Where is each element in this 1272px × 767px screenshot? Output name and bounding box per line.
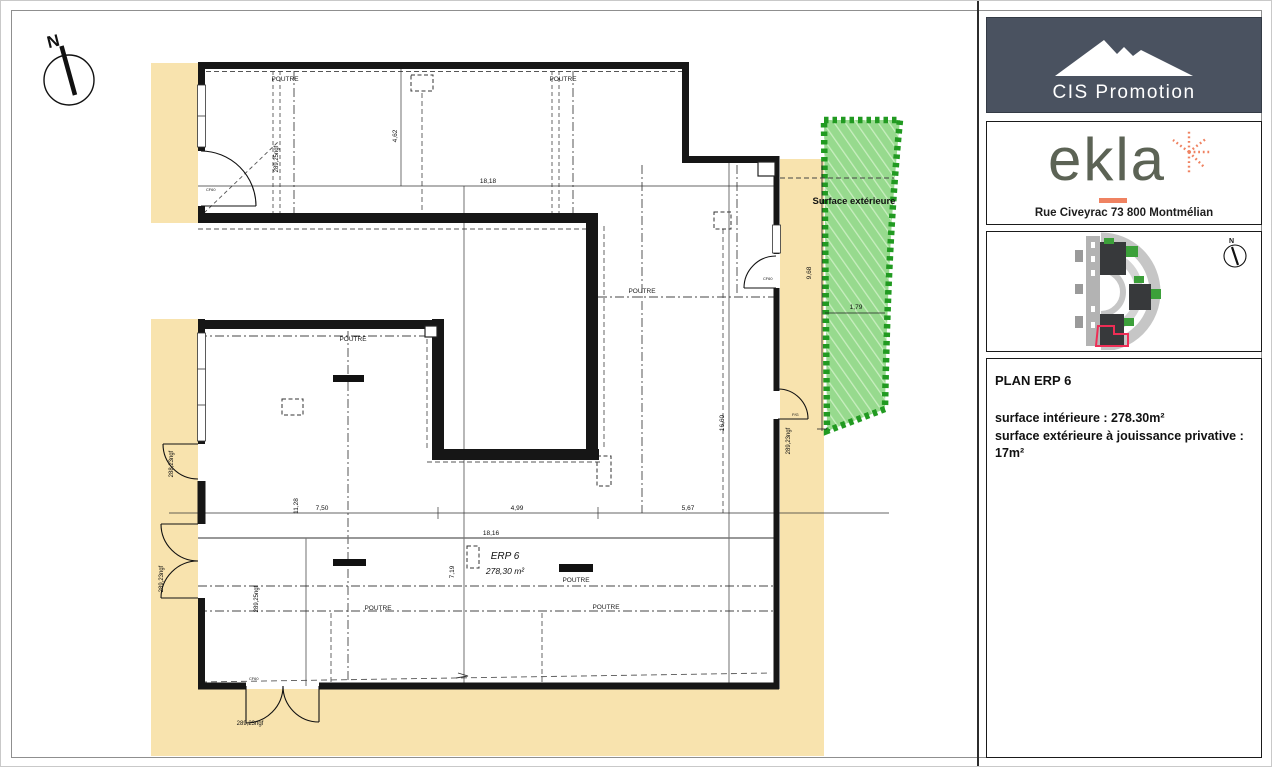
ekla-underline [1099,198,1127,203]
cf60-label: CF60 [249,676,259,681]
ekla-address: Rue Civeyrac 73 800 Montmélian [987,207,1261,219]
ngf-label: 289,23ngf [159,565,165,592]
ekla-panel: ekla Rue Civeyrac 73 800 Montmélian [986,121,1262,225]
surface-exterieure-value: 17m² [995,445,1251,463]
mountain-icon [987,18,1261,78]
ngf-label: 289,23ngf [786,427,792,454]
dim-11-28: 11,28 [293,498,300,514]
dim-5-67: 5,67 [682,505,695,512]
cf60-label: CF60 [763,276,773,281]
site-plan-north-label: N [1229,238,1234,245]
ngf-label: 289,25ngf [254,585,260,612]
cf60-label: CF60 [206,187,216,192]
poutre-label: POUTRE [592,604,620,611]
dim-9-68: 9,68 [806,266,813,279]
pg-label: P/G [792,412,799,417]
poutre-label: POUTRE [549,76,577,83]
cis-promotion-name: CIS Promotion [987,82,1261,104]
surface-exterieure-text: surface extérieure à jouissance privativ… [995,428,1251,446]
site-buildings [1096,238,1161,346]
cis-promotion-panel: CIS Promotion [986,17,1262,113]
surface-exterieure-label: Surface extérieure [813,196,896,207]
dim-4-99: 4,99 [511,505,524,512]
walls [198,62,779,689]
dim-7-19: 7,19 [449,565,456,578]
page: N POUTRE POUTRE POUTRE POUTRE POUTRE POU… [0,0,1272,767]
erp6-room-label: ERP 6 [491,551,520,562]
poutre-label: POUTRE [271,76,299,83]
site-plan-compass-icon: N [1224,238,1246,267]
ekla-star-icon [1163,126,1223,178]
windows [198,85,781,441]
poutre-label: POUTRE [628,288,656,295]
north-label: N [45,31,62,52]
poutre-label: POUTRE [562,577,590,584]
dim-18-18: 18,18 [480,178,497,185]
poutre-label: POUTRE [364,605,392,612]
sidebar: CIS Promotion ekla Rue Civeyrac 73 800 M… [985,1,1263,767]
doors [161,151,808,723]
dim-7-50: 7,50 [316,505,329,512]
dim-18-16: 18,16 [483,530,500,537]
technical-labels: CF60 CF60 CF60 P/G [206,187,799,681]
plan-info-panel: PLAN ERP 6 surface intérieure : 278.30m²… [986,358,1262,758]
plan-title: PLAN ERP 6 [995,373,1251,388]
ngf-label: 288,23ngf [169,450,175,477]
elevation-labels: 289,25ngf 289,25ngf 288,23ngf 289,23ngf … [159,145,792,727]
north-compass: N [44,31,94,105]
poutre-label: POUTRE [339,336,367,343]
floor-plan: N POUTRE POUTRE POUTRE POUTRE POUTRE POU… [1,1,978,767]
erp6-area-label: 278,30 m² [485,566,525,576]
beam-bars [333,375,593,572]
panel-divider [977,1,979,767]
surface-interieure-text: surface intérieure : 278.30m² [995,410,1251,428]
ngf-label: 289,23ngf [237,721,264,727]
dim-1-79: 1,79 [850,304,863,311]
dim-4-62: 4,62 [392,129,399,142]
ngf-label: 289,25ngf [274,145,280,172]
site-plan-thumbnail: N [987,232,1260,350]
site-plan-panel: N [986,231,1262,352]
dim-16-60: 16,60 [719,414,726,431]
